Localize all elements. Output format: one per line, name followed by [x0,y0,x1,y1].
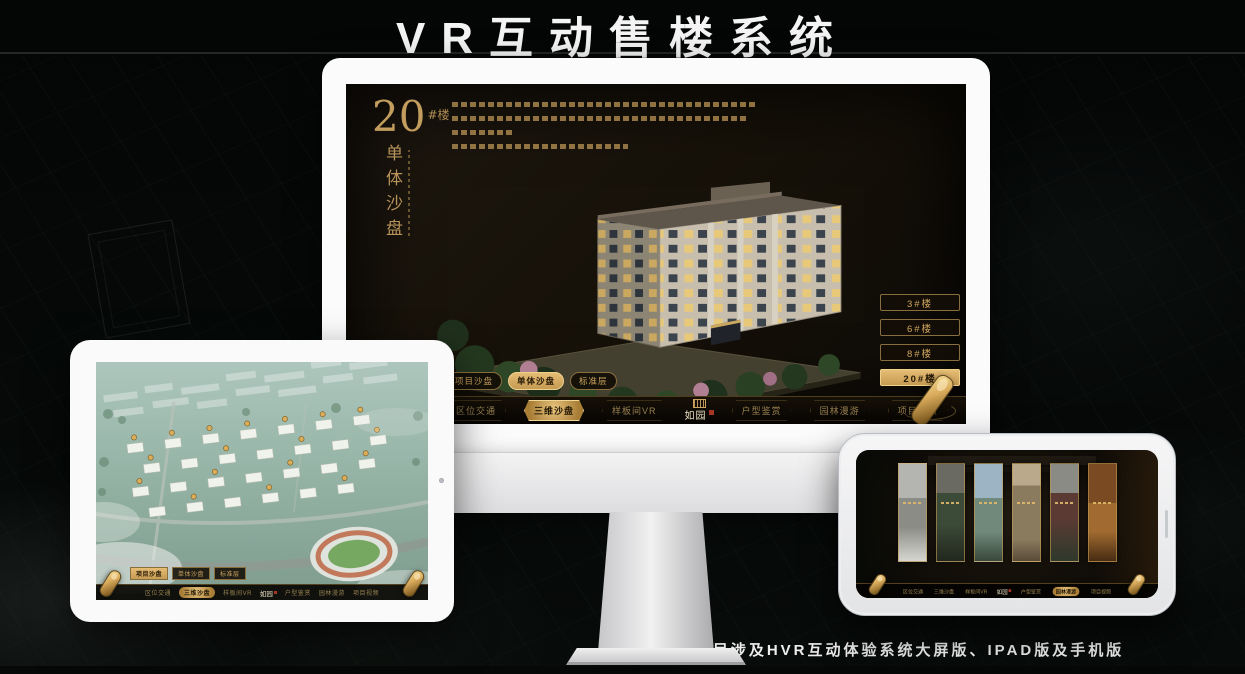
nav-item-location-traffic[interactable]: 区位交通 [446,400,506,421]
building-button-8[interactable]: 8#楼 [880,344,960,361]
tablet-nav-floorplan[interactable]: 户型鉴赏 [285,588,311,597]
tablet-nav-3d-sandbox[interactable]: 三维沙盘 [179,587,215,598]
tablet-device: 项目沙盘 单体沙盘 标准层 区位交通 三维沙盘 样板间VR 如园 户型鉴赏 园林… [70,340,454,622]
building-button-6[interactable]: 6#楼 [880,319,960,336]
vr-scene-card[interactable] [898,463,927,562]
nav-item-floorplan[interactable]: 户型鉴赏 [732,400,792,421]
tablet-nav-project-video[interactable]: 项目视频 [353,588,379,597]
monitor-stand-base [566,648,746,665]
tablet-tab-single-building[interactable]: 单体沙盘 [172,567,210,580]
nav-item-showroom-vr[interactable]: 样板间VR [602,400,667,421]
tablet-camera-dot [439,478,444,483]
logo-stamp-icon [693,399,706,408]
phone-device: 区位交通 三维沙盘 样板间VR 如园 户型鉴赏 园林漫游 项目视频 [838,433,1176,616]
building-button-3[interactable]: 3#楼 [880,294,960,311]
phone-nav-project-video[interactable]: 项目视频 [1091,587,1111,595]
phone-brand-logo: 如园 [997,587,1011,595]
vr-scene-card[interactable] [936,463,965,562]
tab-single-building-sandbox[interactable]: 单体沙盘 [508,372,564,390]
page-title: VR互动售楼系统 [0,2,1245,66]
vr-scene-card[interactable] [1088,463,1117,562]
tablet-tab-project-sandbox[interactable]: 项目沙盘 [130,567,168,580]
vr-scene-card[interactable] [1012,463,1041,562]
tablet-brand-logo: 如园 [260,588,277,598]
monitor-stand-neck [598,512,714,652]
phone-nav-showroom-vr[interactable]: 样板间VR [965,587,987,595]
phone-speaker-pill [1165,510,1168,538]
vr-scene-card[interactable] [1050,463,1079,562]
phone-nav-garden-tour[interactable]: 园林漫游 [1053,586,1080,595]
description-text-lines [452,102,757,158]
aerial-sandbox-image [96,362,428,600]
subtab-bar: 项目沙盘 单体沙盘 标准层 [446,372,617,390]
vr-scene-gallery [856,463,1158,562]
brand-logo: 如园 [685,399,714,422]
phone-screen: 区位交通 三维沙盘 样板间VR 如园 户型鉴赏 园林漫游 项目视频 [856,450,1158,598]
nav-item-3d-sandbox[interactable]: 三维沙盘 [524,400,584,421]
building-number-suffix: #楼 [427,108,449,122]
tablet-subtab-bar: 项目沙盘 单体沙盘 标准层 [130,567,246,580]
vr-scene-card[interactable] [974,463,1003,562]
tab-project-sandbox[interactable]: 项目沙盘 [446,372,502,390]
nav-item-garden-tour[interactable]: 园林漫游 [810,400,870,421]
vertical-caption-line [408,150,410,236]
tablet-screen: 项目沙盘 单体沙盘 标准层 区位交通 三维沙盘 样板间VR 如园 户型鉴赏 园林… [96,362,428,600]
screen-subtitle: 单体沙盘 [380,144,405,244]
background-plaque [87,219,190,338]
tablet-nav-garden-tour[interactable]: 园林漫游 [319,588,345,597]
tablet-nav-location-traffic[interactable]: 区位交通 [145,588,171,597]
tablet-tab-standard-floor[interactable]: 标准层 [214,567,246,580]
red-seal-icon [274,591,277,594]
phone-nav-3d-sandbox[interactable]: 三维沙盘 [934,587,954,595]
phone-nav-location-traffic[interactable]: 区位交通 [903,587,923,595]
tab-standard-floor[interactable]: 标准层 [570,372,617,390]
tablet-nav-bar: 区位交通 三维沙盘 样板间VR 如园 户型鉴赏 园林漫游 项目视频 [96,584,428,600]
phone-nav-floorplan[interactable]: 户型鉴赏 [1021,587,1041,595]
building-number: 20 [372,92,425,141]
building-selector: 3#楼 6#楼 8#楼 20#楼 [880,294,960,386]
red-seal-icon [709,410,714,415]
phone-nav-bar: 区位交通 三维沙盘 样板间VR 如园 户型鉴赏 园林漫游 项目视频 [856,583,1158,598]
tablet-nav-showroom-vr[interactable]: 样板间VR [223,588,252,597]
red-seal-icon [1009,589,1012,592]
